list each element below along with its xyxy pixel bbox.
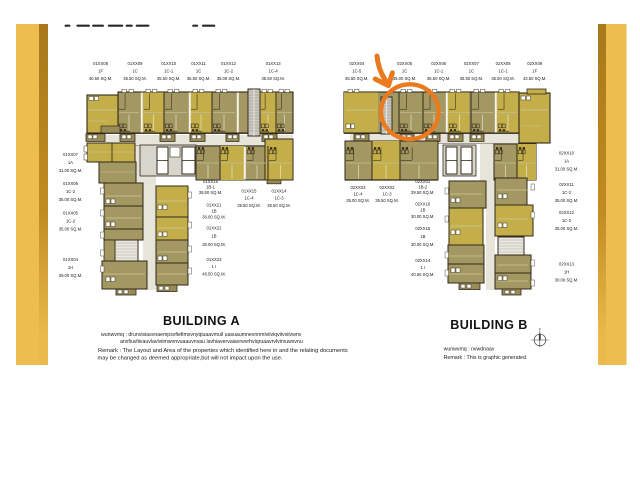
svg-text:39.00 SQ.M.: 39.00 SQ.M. bbox=[59, 273, 83, 278]
svg-text:1C-4: 1C-4 bbox=[353, 191, 363, 196]
svg-text:02XX06: 02XX06 bbox=[431, 61, 447, 66]
svg-text:1C-5: 1C-5 bbox=[352, 68, 362, 73]
svg-text:35.50 SQ.M.: 35.50 SQ.M. bbox=[237, 203, 261, 208]
svg-text:02XX02: 02XX02 bbox=[380, 185, 396, 190]
svg-text:1C-4: 1C-4 bbox=[244, 196, 254, 201]
svg-text:01XX22: 01XX22 bbox=[207, 225, 223, 230]
svg-text:35.50 SQ.M.: 35.50 SQ.M. bbox=[460, 76, 484, 81]
svg-text:01XX08: 01XX08 bbox=[93, 61, 109, 66]
svg-text:wunwvmq : nvwdnaav: wunwvmq : nvwdnaav bbox=[444, 347, 495, 353]
svg-text:30.00 SQ.M.: 30.00 SQ.M. bbox=[411, 242, 435, 247]
svg-text:1F: 1F bbox=[532, 68, 537, 73]
svg-text:1H: 1H bbox=[68, 265, 73, 270]
svg-text:35.50 SQ.M.: 35.50 SQ.M. bbox=[427, 76, 451, 81]
svg-text:35.00 SQ.M.: 35.00 SQ.M. bbox=[393, 76, 417, 81]
svg-text:39.50 SQ.M.: 39.50 SQ.M. bbox=[199, 190, 223, 195]
svg-text:1C-2: 1C-2 bbox=[562, 218, 572, 223]
svg-text:1C-3: 1C-3 bbox=[382, 191, 392, 196]
svg-text:1C: 1C bbox=[469, 68, 474, 73]
svg-text:1C-1: 1C-1 bbox=[499, 68, 509, 73]
svg-text:02XX05: 02XX05 bbox=[397, 61, 413, 66]
svg-text:35.50 SQ.M.: 35.50 SQ.M. bbox=[157, 76, 181, 81]
svg-text:02XX15: 02XX15 bbox=[415, 226, 431, 231]
svg-text:01XX13: 01XX13 bbox=[266, 61, 282, 66]
svg-text:35.50 SQ.M.: 35.50 SQ.M. bbox=[261, 76, 285, 81]
svg-text:1C-1: 1C-1 bbox=[164, 68, 174, 73]
svg-text:40.50 SQ.M.: 40.50 SQ.M. bbox=[411, 272, 435, 277]
svg-text:01XX15: 01XX15 bbox=[242, 188, 258, 193]
svg-text:1F: 1F bbox=[98, 68, 103, 73]
svg-text:1C-2: 1C-2 bbox=[66, 218, 76, 223]
svg-text:02XX12: 02XX12 bbox=[559, 210, 575, 215]
svg-text:N: N bbox=[539, 327, 541, 331]
svg-text:wunwvmq : drunvisiasvnaempsvfi: wunwvmq : drunvisiasvnaempsvfiefimxvnyqi… bbox=[101, 332, 302, 338]
svg-text:02XX11: 02XX11 bbox=[559, 182, 574, 187]
svg-text:1C: 1C bbox=[196, 68, 201, 73]
svg-text:02XX07: 02XX07 bbox=[464, 61, 480, 66]
svg-text:35.00 SQ.M.: 35.00 SQ.M. bbox=[59, 226, 83, 231]
svg-text:35.50 SQ.M.: 35.50 SQ.M. bbox=[267, 203, 291, 208]
svg-text:1B: 1B bbox=[211, 208, 216, 213]
svg-text:BUILDING B: BUILDING B bbox=[450, 318, 527, 332]
svg-text:1B: 1B bbox=[420, 208, 425, 213]
svg-text:02XX08: 02XX08 bbox=[496, 61, 512, 66]
svg-text:02XX03: 02XX03 bbox=[351, 185, 367, 190]
svg-text:1 I: 1 I bbox=[212, 264, 217, 269]
svg-text:1C-4: 1C-4 bbox=[269, 68, 279, 73]
svg-text:BUILDING A: BUILDING A bbox=[163, 314, 240, 328]
svg-text:01XX06: 01XX06 bbox=[63, 181, 79, 186]
svg-text:35.00 SQ.M.: 35.00 SQ.M. bbox=[59, 197, 83, 202]
svg-text:1B-2: 1B-2 bbox=[418, 185, 428, 190]
svg-text:30.00 SQ.M.: 30.00 SQ.M. bbox=[555, 277, 579, 282]
svg-text:may be changed as deemed appro: may be changed as deemed appropriate,but… bbox=[98, 356, 283, 362]
svg-text:01XX10: 01XX10 bbox=[161, 61, 177, 66]
svg-text:35.00 SQ.M.: 35.00 SQ.M. bbox=[346, 198, 370, 203]
svg-text:01XX05: 01XX05 bbox=[63, 210, 79, 215]
svg-text:31.00 SQ.M.: 31.00 SQ.M. bbox=[555, 166, 579, 171]
svg-text:02XX10: 02XX10 bbox=[559, 150, 575, 155]
svg-text:1C-2: 1C-2 bbox=[224, 68, 234, 73]
svg-text:35.00 SQ.M.: 35.00 SQ.M. bbox=[217, 76, 241, 81]
svg-text:02XX13: 02XX13 bbox=[559, 261, 575, 266]
svg-text:1B: 1B bbox=[211, 234, 216, 239]
svg-text:01XX11: 01XX11 bbox=[191, 61, 206, 66]
svg-text:31.00 SQ.M.: 31.00 SQ.M. bbox=[59, 168, 83, 173]
svg-text:35.50 SQ.M.: 35.50 SQ.M. bbox=[345, 76, 369, 81]
svg-text:1 I: 1 I bbox=[420, 265, 425, 270]
svg-text:35.50 SQ.M.: 35.50 SQ.M. bbox=[123, 76, 147, 81]
svg-text:Remark : The Layout and Area o: Remark : The Layout and Area of the prop… bbox=[98, 348, 348, 354]
svg-text:02XX04: 02XX04 bbox=[349, 61, 365, 66]
svg-text:40.50 SQ.M.: 40.50 SQ.M. bbox=[89, 76, 113, 81]
svg-text:02XX14: 02XX14 bbox=[415, 258, 431, 263]
svg-text:1C: 1C bbox=[402, 68, 407, 73]
svg-text:1C-2: 1C-2 bbox=[562, 190, 572, 195]
svg-text:1B: 1B bbox=[420, 234, 425, 239]
svg-text:30.00 SQ.M.: 30.00 SQ.M. bbox=[202, 214, 226, 219]
svg-text:1C-3: 1C-3 bbox=[274, 196, 284, 201]
svg-text:1A: 1A bbox=[68, 160, 73, 165]
svg-text:01XX14: 01XX14 bbox=[272, 188, 288, 193]
svg-text:1C-2: 1C-2 bbox=[66, 189, 76, 194]
svg-text:1H: 1H bbox=[564, 269, 569, 274]
svg-text:Remark : This is graphic gener: Remark : This is graphic generated. bbox=[444, 355, 528, 361]
svg-text:02XX16: 02XX16 bbox=[415, 201, 431, 206]
svg-text:01XX04: 01XX04 bbox=[63, 257, 79, 262]
svg-text:1B-1: 1B-1 bbox=[206, 185, 216, 190]
svg-text:anxfiuvliivauvlavlviimwvnvuaau: anxfiuvliivauvlavlviimwvnvuaauvnvau lavh… bbox=[120, 339, 303, 345]
svg-text:01XX07: 01XX07 bbox=[63, 152, 79, 157]
svg-text:43.50 SQ.M.: 43.50 SQ.M. bbox=[523, 76, 547, 81]
svg-text:40.50 SQ.M.: 40.50 SQ.M. bbox=[202, 272, 226, 277]
svg-text:01XX12: 01XX12 bbox=[221, 61, 237, 66]
svg-text:1C-1: 1C-1 bbox=[434, 68, 444, 73]
svg-text:35.50 SQ.M.: 35.50 SQ.M. bbox=[375, 198, 399, 203]
svg-text:1A: 1A bbox=[564, 158, 569, 163]
svg-text:01XX21: 01XX21 bbox=[207, 202, 223, 207]
svg-text:01XX09: 01XX09 bbox=[128, 61, 144, 66]
svg-text:02XX09: 02XX09 bbox=[527, 61, 543, 66]
svg-text:35.00 SQ.M.: 35.00 SQ.M. bbox=[555, 226, 579, 231]
svg-text:39.50 SQ.M.: 39.50 SQ.M. bbox=[411, 190, 435, 195]
svg-text:02XX01: 02XX01 bbox=[415, 179, 431, 184]
svg-text:1C: 1C bbox=[132, 68, 137, 73]
svg-text:30.00 SQ.M.: 30.00 SQ.M. bbox=[411, 214, 435, 219]
svg-text:01XX23: 01XX23 bbox=[207, 257, 223, 262]
svg-text:30.00 SQ.M.: 30.00 SQ.M. bbox=[202, 242, 226, 247]
svg-text:35.50 SQ.M.: 35.50 SQ.M. bbox=[491, 76, 515, 81]
svg-text:01XX16: 01XX16 bbox=[203, 179, 219, 184]
svg-text:35.00 SQ.M.: 35.00 SQ.M. bbox=[555, 198, 579, 203]
svg-text:35.50 SQ.M.: 35.50 SQ.M. bbox=[187, 76, 211, 81]
